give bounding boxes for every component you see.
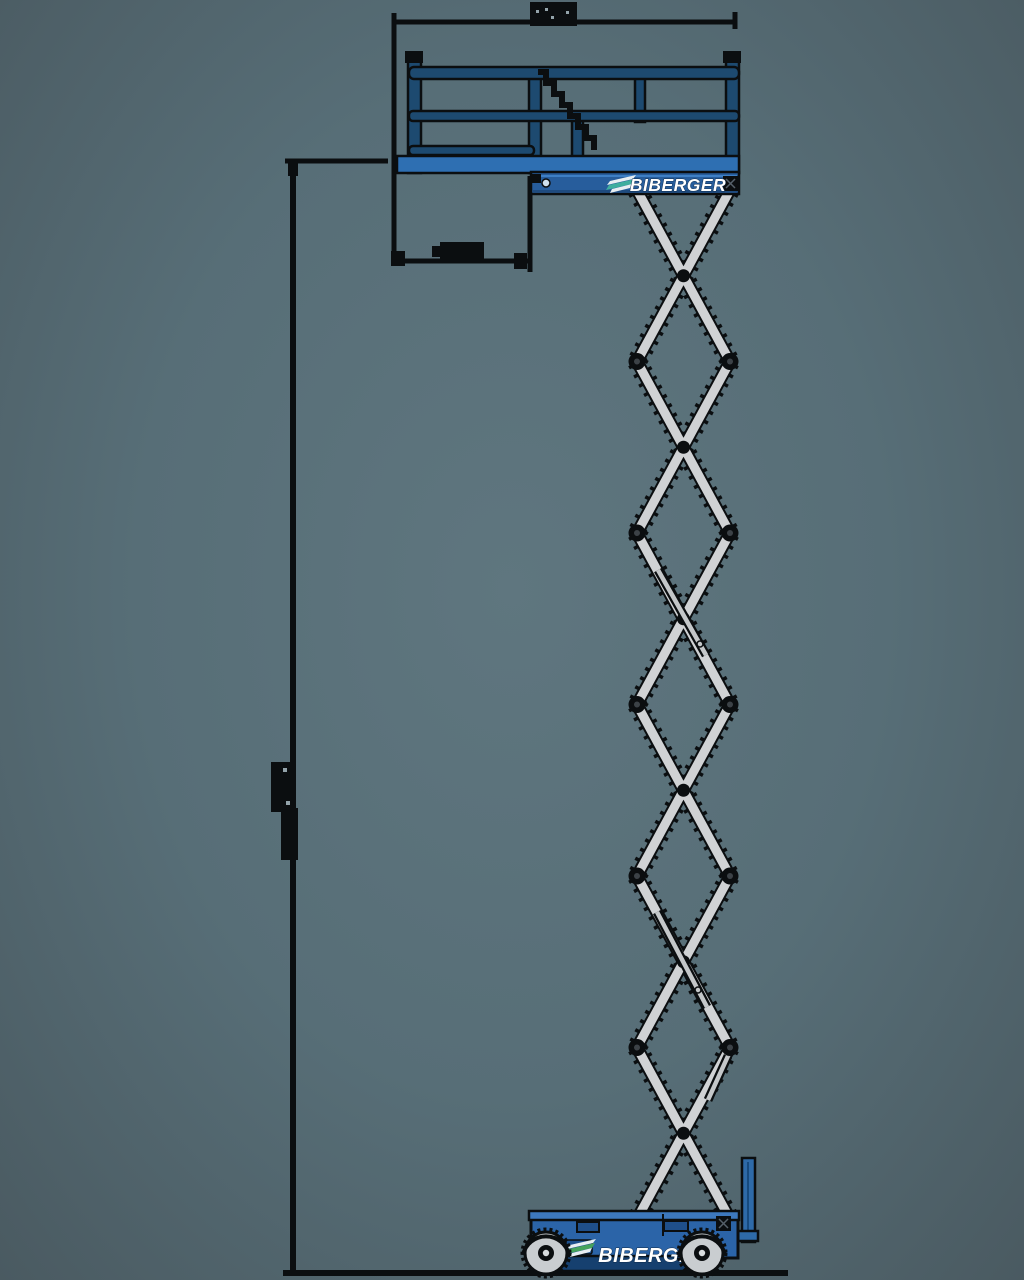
scissor-hinge [722,1039,739,1056]
skirt-hole [542,179,550,187]
footprint-dimension [391,176,531,272]
scissor-hinge [722,353,739,370]
scissor-hinge [722,868,739,885]
skirt-bolt [532,174,541,183]
scissor-segment [637,190,730,362]
platform: BIBERGER [397,51,741,195]
scissor-hinge [722,696,739,713]
chassis-top-rim [529,1211,739,1220]
scissor-hinge [629,1039,646,1056]
scissor-hinge [722,525,739,542]
platform-logo-text: BIBERGER [630,175,726,195]
scissor-mechanism [629,190,739,1219]
scissor-hinge [629,696,646,713]
height-dimension [271,160,388,1275]
chassis-pocket [577,1222,599,1232]
scissor-hinge [629,353,646,370]
scissor-base-bracket [716,1216,731,1231]
platform-guardrail [405,51,741,173]
scissor-hinge [629,868,646,885]
chassis-pocket [664,1221,688,1231]
extension-lower-rail [409,146,534,155]
scissor-lift-diagram: BIBERGER BIBERGER [0,0,1024,1280]
height-dimension-label-illegible [271,762,298,860]
drawing-canvas: BIBERGER BIBERGER [0,0,1024,1280]
scissor-segment [637,705,730,877]
post-cap [405,51,423,63]
top-width-dimension-label-illegible [530,2,577,26]
chassis: BIBERGER [523,1211,740,1277]
top-width-dimension [394,2,736,263]
platform-deck [397,156,739,173]
scissor-hinge [629,525,646,542]
post-cap [723,51,741,63]
top-rail [409,67,739,79]
platform-skirt: BIBERGER [531,172,739,195]
scissor-segment [637,362,730,534]
